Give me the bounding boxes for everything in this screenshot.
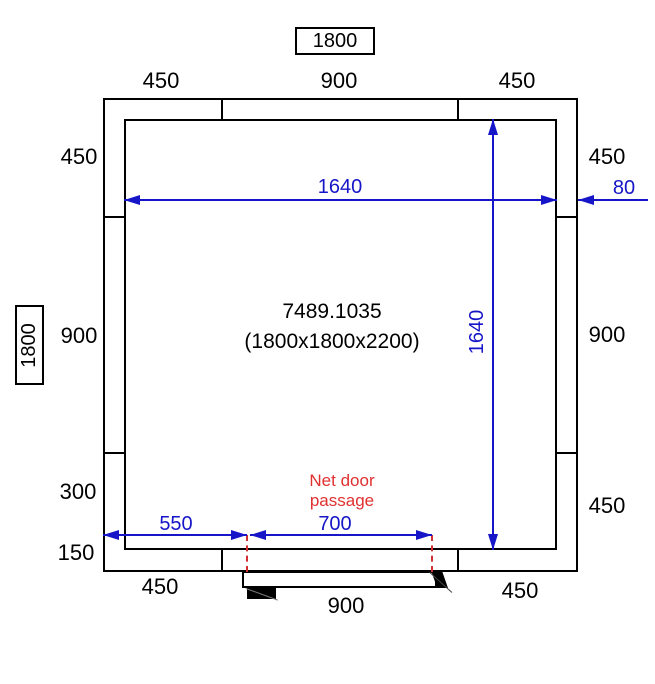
right-wall-divider-top [557,216,578,218]
right-dim-3: 450 [589,495,626,517]
bottom-dim-left: 450 [142,576,179,598]
right-wall-divider-bottom [557,452,578,454]
wall-thickness-arrow [578,195,594,205]
product-size-label: (1800x1800x2200) [244,330,419,354]
net-door-passage-note-line1: Net door [309,471,374,491]
inner-height-dimension-label: 1640 [467,310,487,355]
right-dim-1: 450 [589,146,626,168]
bottom-wall-divider-left [221,550,223,572]
door-leaf [242,571,437,588]
overall-width-boxed-label: 1800 [295,27,375,55]
top-wall-divider-right [457,98,459,119]
top-dim-right: 450 [499,70,536,92]
right-dim-2: 900 [589,324,626,346]
overall-depth-boxed-label: 1800 [15,305,44,385]
left-dim-4: 150 [58,542,95,564]
door-passage-dashed-line-left [246,535,248,572]
inner-width-arrow-left [124,195,140,205]
left-wall-divider-top [103,216,124,218]
technical-drawing-canvas: 1800 1800 1640 1640 80 550 700 Net do [0,0,655,684]
left-dim-2: 900 [61,325,98,347]
bottom-dim-right: 450 [502,580,539,602]
product-code-label: 7489.1035 [282,300,381,324]
door-offset-arrow-right [231,530,247,540]
overall-depth-value: 1800 [18,323,41,368]
inner-height-dimension-line [492,119,494,550]
door-offset-dimension-label: 550 [159,514,192,534]
top-dim-left: 450 [143,70,180,92]
door-offset-arrow-left [103,530,119,540]
door-passage-arrow-right [416,530,432,540]
bottom-wall-divider-right [457,550,459,572]
net-door-passage-note-line2: passage [309,491,374,511]
inner-height-arrow-down [488,534,498,550]
door-passage-dashed-line-right [431,535,433,572]
door-passage-dimension-label: 700 [318,514,351,534]
net-door-passage-note: Net door passage [309,471,374,511]
overall-width-value: 1800 [313,30,358,53]
inner-height-arrow-up [488,119,498,135]
door-passage-arrow-left [250,530,266,540]
inner-width-dimension-label: 1640 [318,177,363,197]
wall-thickness-dimension-label: 80 [613,178,635,198]
top-wall-divider-left [221,98,223,119]
top-dim-center: 900 [321,70,358,92]
left-dim-1: 450 [61,146,98,168]
inner-width-arrow-right [541,195,557,205]
left-dim-3: 300 [60,481,97,503]
left-wall-divider-bottom [103,452,124,454]
bottom-dim-center: 900 [328,595,365,617]
